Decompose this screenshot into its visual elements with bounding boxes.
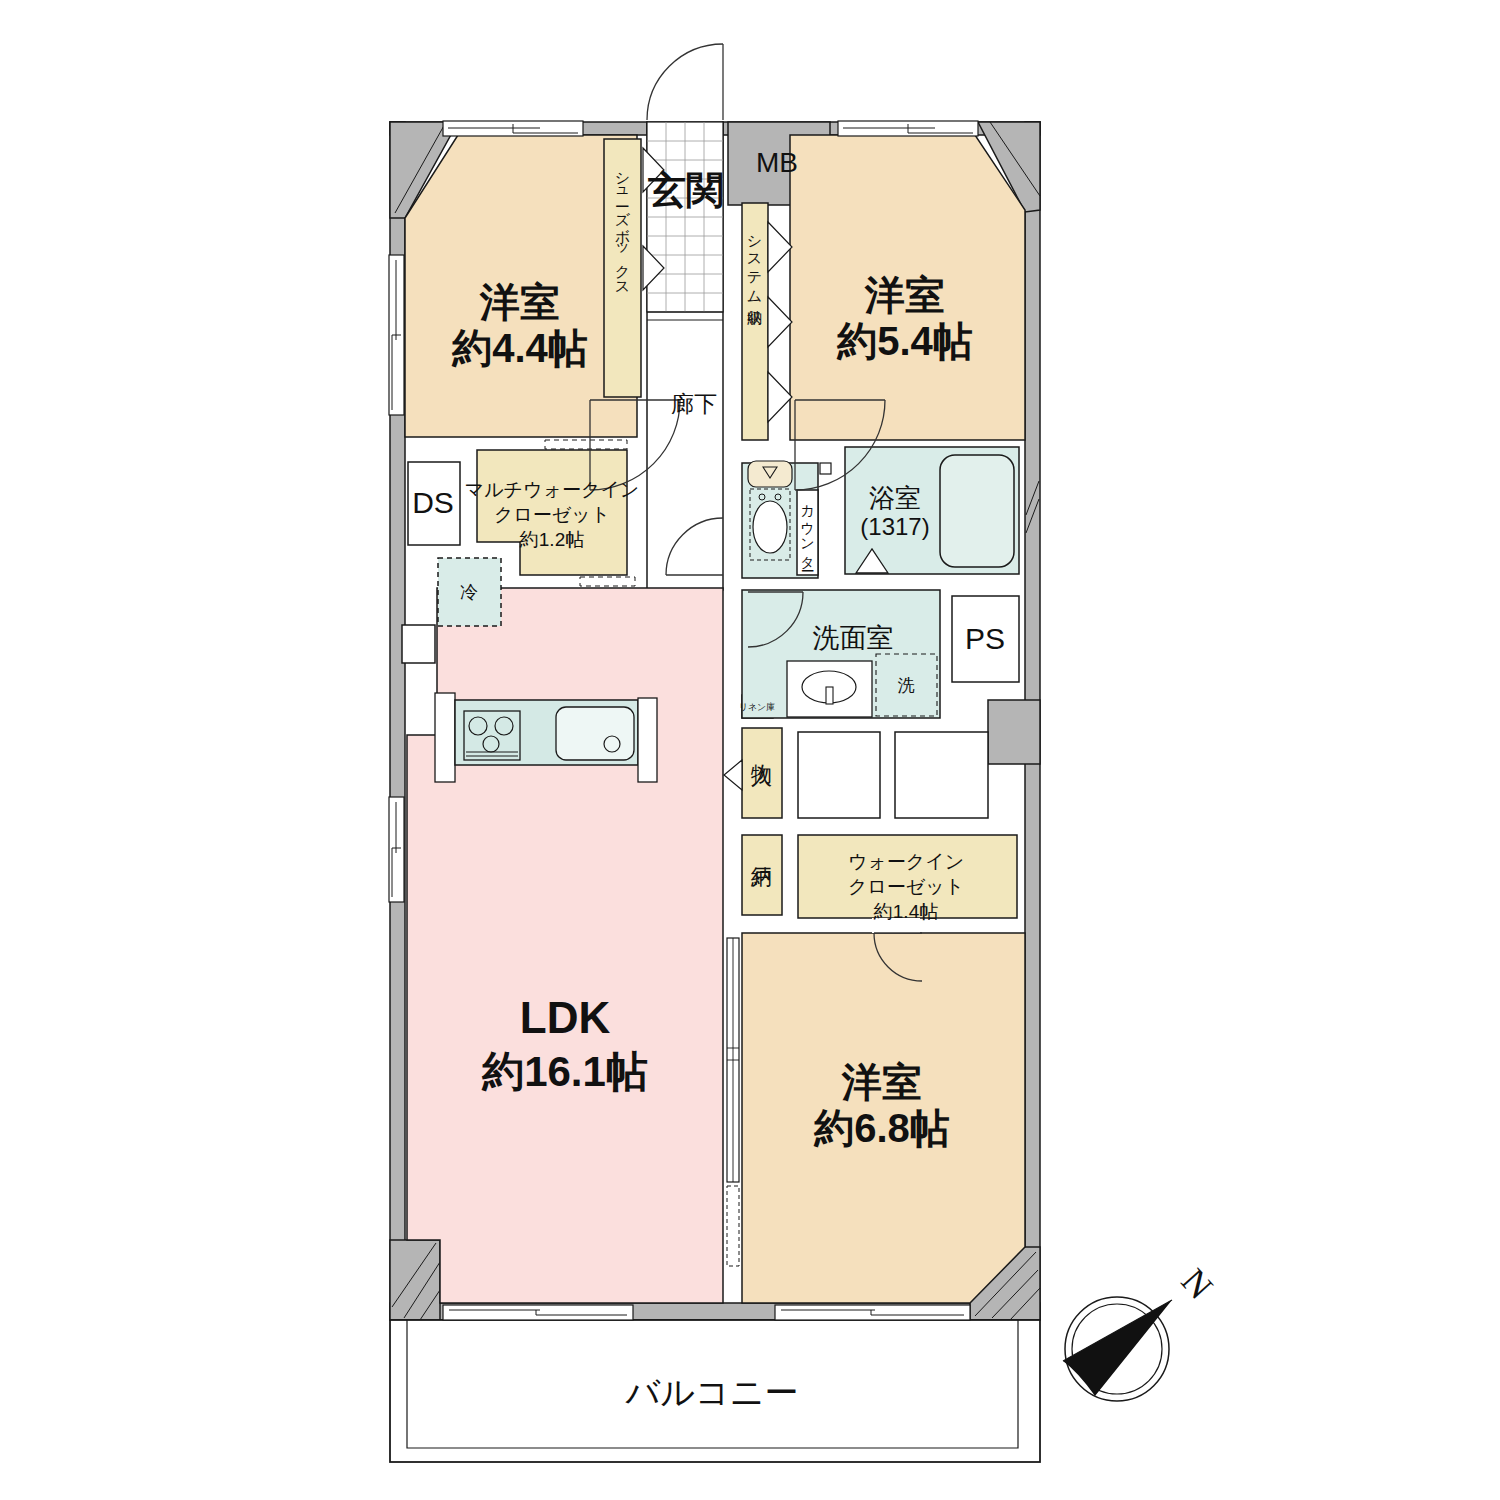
multi-wic-line1: マルチウォークイン xyxy=(465,480,640,499)
window-bottom-room3 xyxy=(775,1305,970,1320)
system-storage-door-icon xyxy=(768,297,792,347)
room2-size: 約5.4帖 xyxy=(837,321,973,361)
compass xyxy=(1063,1297,1172,1401)
room1-name: 洋室 xyxy=(480,282,560,322)
window-top-right xyxy=(838,121,978,136)
balcony-label: バルコニー xyxy=(625,1375,798,1409)
multi-wic-line2: クローゼット xyxy=(494,505,610,524)
ds-label: DS xyxy=(412,488,454,518)
room2-name: 洋室 xyxy=(865,275,945,315)
bath-label: 浴室 xyxy=(869,485,921,511)
system-storage-door-icon xyxy=(768,222,792,272)
monoire-label: 物入 xyxy=(752,747,773,749)
bath-size-label: (1317) xyxy=(860,515,929,539)
toilet-counter-label: カウンター xyxy=(801,495,815,564)
system-storage-door-icon xyxy=(768,372,792,422)
vanity-sink xyxy=(787,661,872,717)
entrance-door xyxy=(647,44,723,120)
bathtub xyxy=(940,455,1014,567)
washer-label: 洗 xyxy=(898,677,915,694)
linen-label: リネン庫 xyxy=(739,703,776,712)
washroom-label: 洗面室 xyxy=(813,625,894,652)
monoire-door-icon xyxy=(724,760,742,790)
multi-wic-line3: 約1.2帖 xyxy=(520,530,584,549)
room3-size: 約6.8帖 xyxy=(814,1108,950,1148)
wic-line3: 約1.4帖 xyxy=(874,902,938,921)
ps-label: PS xyxy=(965,624,1005,654)
floor-plan-page: 洋室 約4.4帖 洋室 約5.4帖 洋室 約6.8帖 LDK 約16.1帖 玄関… xyxy=(0,0,1500,1500)
wall-corner-bottom-left xyxy=(390,1240,440,1320)
window-left-upper xyxy=(389,255,404,415)
ldk-size: 約16.1帖 xyxy=(482,1051,648,1093)
wall-ps-block xyxy=(988,700,1040,764)
vent-square xyxy=(820,463,831,474)
shoe-box-label: シューズボックス xyxy=(616,162,631,290)
window-left-lower xyxy=(389,797,404,902)
meter-box-label: MB xyxy=(756,149,798,177)
nando-box xyxy=(742,835,782,915)
room1-size: 約4.4帖 xyxy=(452,328,588,368)
wic-line2: クローゼット xyxy=(848,877,964,896)
kitchen-sink xyxy=(556,707,634,760)
room3-name: 洋室 xyxy=(842,1062,922,1102)
nando-label: 納戸 xyxy=(752,850,773,852)
window-bottom-ldk xyxy=(443,1305,633,1320)
ldk-name: LDK xyxy=(520,996,610,1040)
storage-box-2 xyxy=(895,732,988,818)
system-storage-label: システム収納 xyxy=(748,225,763,299)
genkan-label: 玄関 xyxy=(648,171,724,209)
monoire-box xyxy=(742,728,782,818)
corridor-label: 廊下 xyxy=(671,393,717,416)
genkan-tiles xyxy=(647,122,723,320)
window-top-left xyxy=(443,121,583,136)
kitchen-end-panel xyxy=(638,698,657,782)
wic-line1: ウォークイン xyxy=(848,852,964,871)
kitchen-side-panel xyxy=(435,693,455,782)
fridge-label: 冷 xyxy=(460,583,478,601)
sliding-partition xyxy=(727,938,739,1266)
storage-box-1 xyxy=(798,732,880,818)
compass-needle-black xyxy=(1063,1300,1172,1396)
left-wall-pillar xyxy=(402,625,435,663)
